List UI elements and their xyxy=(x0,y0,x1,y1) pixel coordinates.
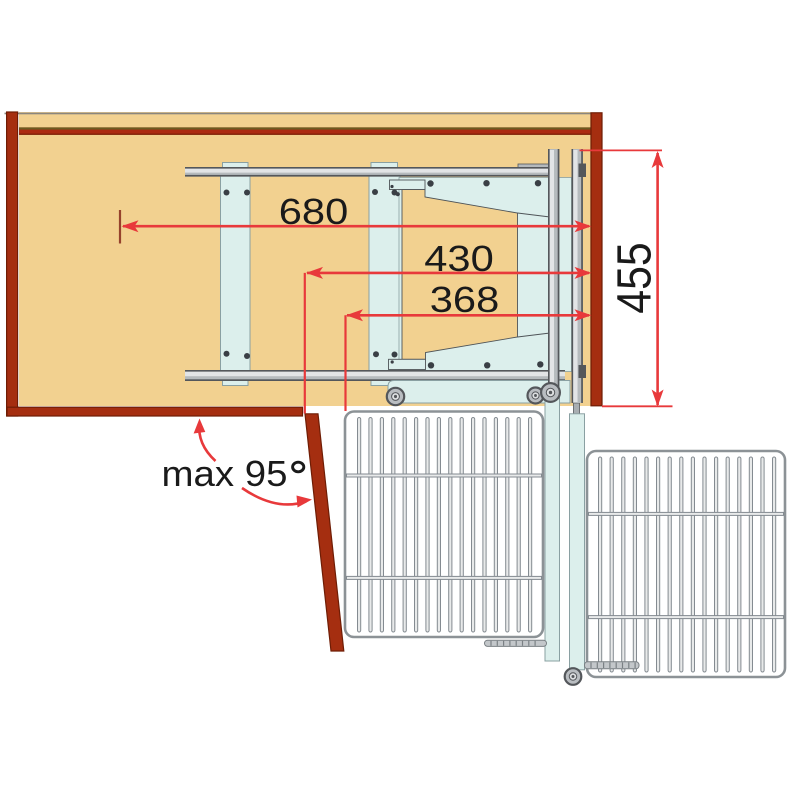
svg-text:680: 680 xyxy=(279,191,349,232)
svg-text:max 95: max 95 xyxy=(162,453,288,494)
svg-text:430: 430 xyxy=(424,238,494,279)
svg-text:368: 368 xyxy=(430,279,500,320)
svg-text:455: 455 xyxy=(609,242,662,314)
